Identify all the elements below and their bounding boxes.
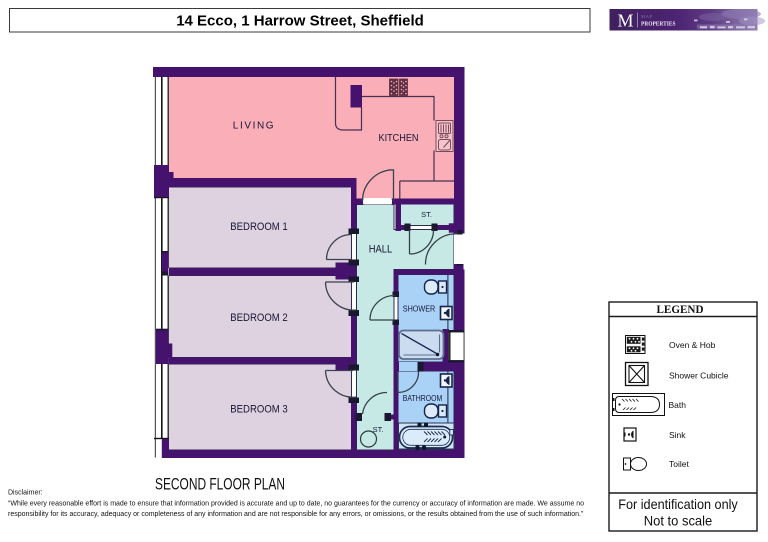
svg-text:ST.: ST. <box>421 210 432 219</box>
svg-text:14 Ecco, 1 Harrow Street, Shef: 14 Ecco, 1 Harrow Street, Sheffield <box>176 13 424 30</box>
svg-text:For identification only: For identification only <box>618 496 738 512</box>
svg-text:BEDROOM 1: BEDROOM 1 <box>230 221 288 233</box>
svg-text:M: M <box>617 11 633 31</box>
svg-text:Shower Cubicle: Shower Cubicle <box>669 371 729 381</box>
svg-text:responsibility for its accurac: responsibility for its accuracy, adequac… <box>8 511 584 518</box>
svg-text:MAF: MAF <box>641 14 653 19</box>
svg-text:Sink: Sink <box>669 430 686 440</box>
svg-text:KITCHEN: KITCHEN <box>379 132 419 144</box>
svg-text:BEDROOM 2: BEDROOM 2 <box>230 312 288 324</box>
svg-text:LIVING: LIVING <box>233 121 275 132</box>
svg-text:“While every reasonable effort: “While every reasonable effort is made t… <box>8 501 584 508</box>
svg-text:Toilet: Toilet <box>669 459 689 469</box>
svg-text:HALL: HALL <box>369 244 393 256</box>
svg-text:LEGEND: LEGEND <box>657 304 704 316</box>
svg-text:BATHROOM: BATHROOM <box>403 394 443 403</box>
svg-text:Oven & Hob: Oven & Hob <box>669 340 716 350</box>
svg-text:SHOWER: SHOWER <box>403 305 436 314</box>
svg-text:BEDROOM 3: BEDROOM 3 <box>230 404 288 416</box>
svg-text:SECOND FLOOR PLAN: SECOND FLOOR PLAN <box>155 475 285 494</box>
svg-text:Bath: Bath <box>669 400 687 410</box>
svg-text:ST.: ST. <box>373 425 384 434</box>
svg-text:Not to scale: Not to scale <box>644 513 713 529</box>
svg-text:PROPERTIES: PROPERTIES <box>641 22 676 28</box>
svg-text:Disclaimer:: Disclaimer: <box>8 490 43 497</box>
